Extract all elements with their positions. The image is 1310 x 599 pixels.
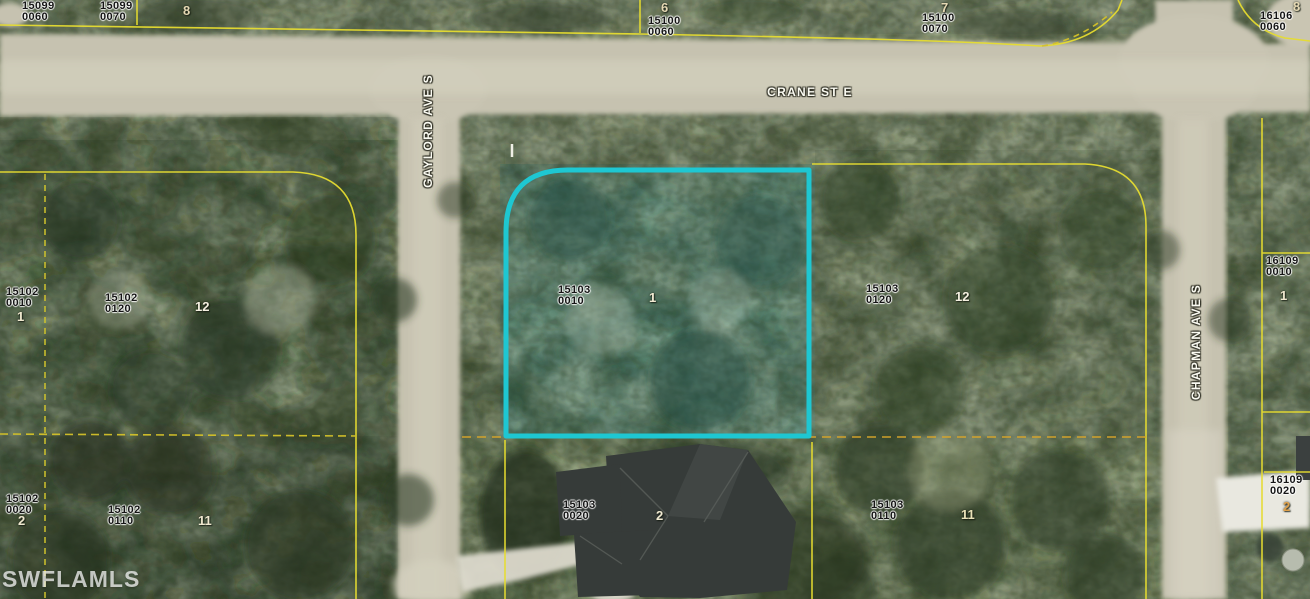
aerial-parcel-map: 1509900601509900701510000601510000701610… — [0, 0, 1310, 599]
highlighted-parcel-outline — [506, 170, 809, 436]
mls-watermark: SWFLAMLS — [2, 566, 140, 593]
aerial-photo — [0, 0, 1310, 599]
concrete-pad — [1216, 470, 1310, 532]
